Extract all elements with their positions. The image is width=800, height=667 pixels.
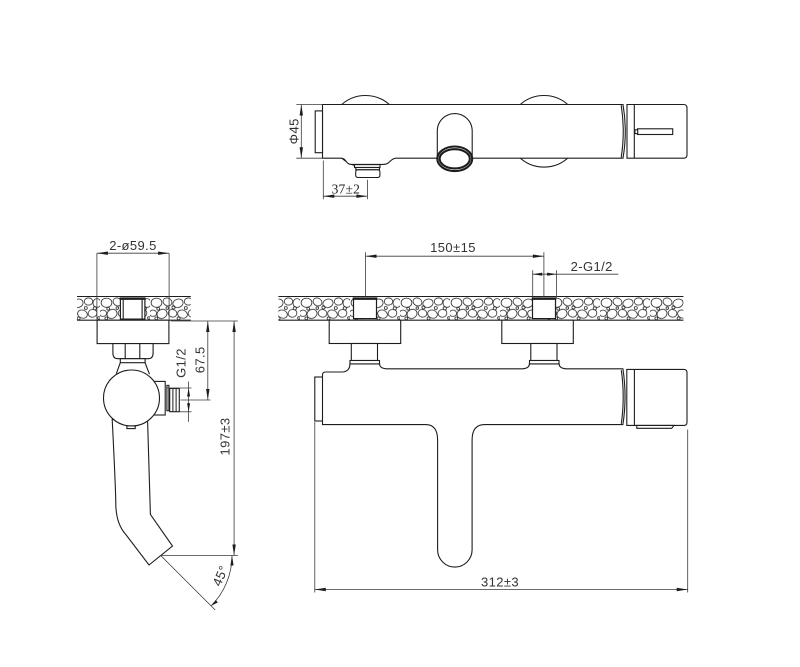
svg-text:67.5: 67.5: [193, 346, 208, 373]
svg-text:37±2: 37±2: [332, 181, 360, 196]
svg-text:2-G1/2: 2-G1/2: [571, 259, 613, 274]
svg-text:Φ45: Φ45: [287, 118, 302, 144]
svg-text:2-ø59.5: 2-ø59.5: [109, 238, 157, 253]
svg-text:312±3: 312±3: [481, 575, 519, 590]
svg-text:G1/2: G1/2: [173, 348, 188, 378]
svg-text:150±15: 150±15: [430, 240, 476, 255]
svg-text:197±3: 197±3: [218, 417, 233, 455]
